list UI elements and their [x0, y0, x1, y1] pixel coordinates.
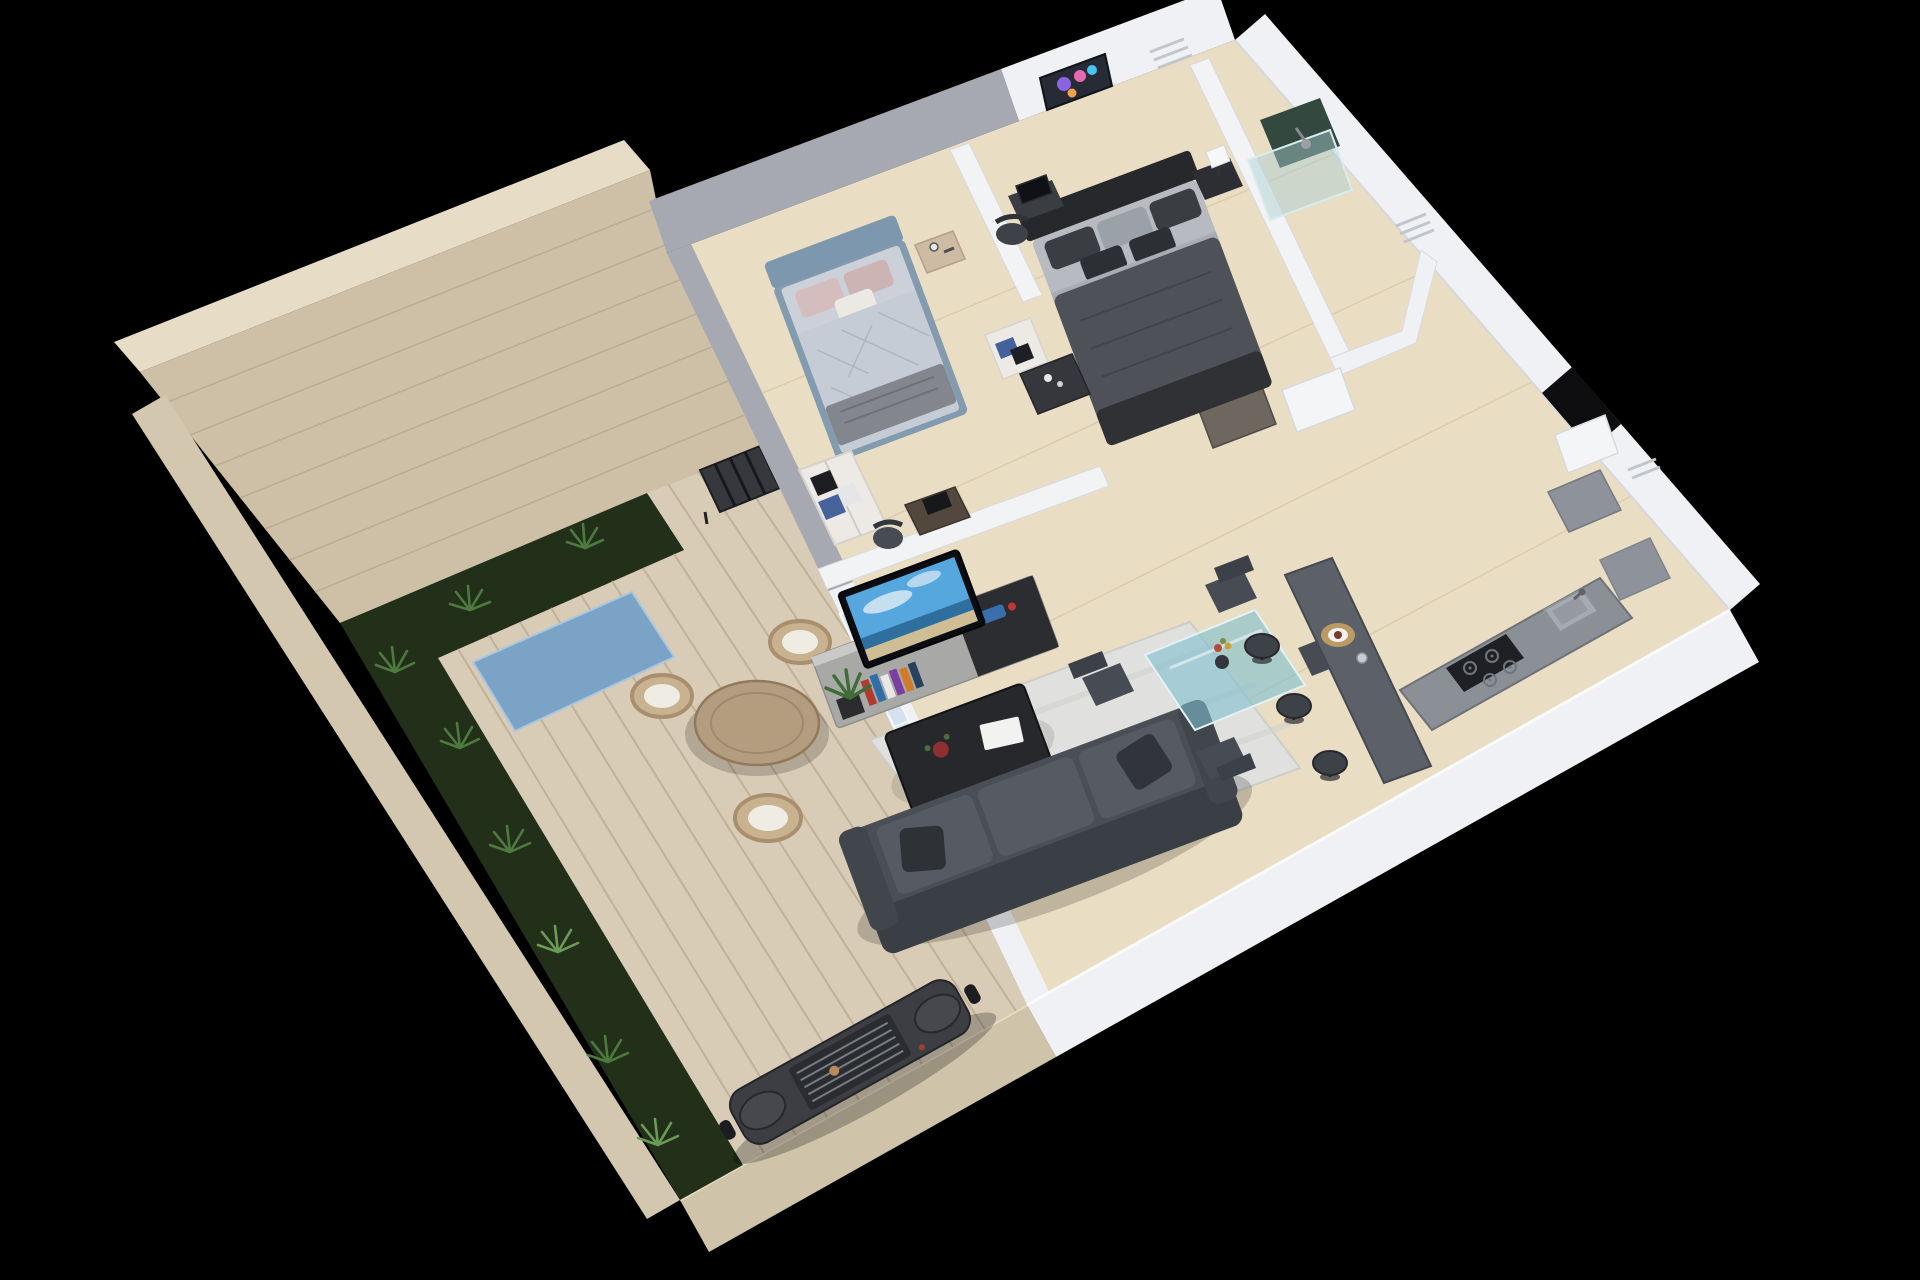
clock-icon — [930, 243, 938, 251]
render-canvas — [0, 0, 1920, 1280]
sofa-pillow — [899, 825, 946, 872]
